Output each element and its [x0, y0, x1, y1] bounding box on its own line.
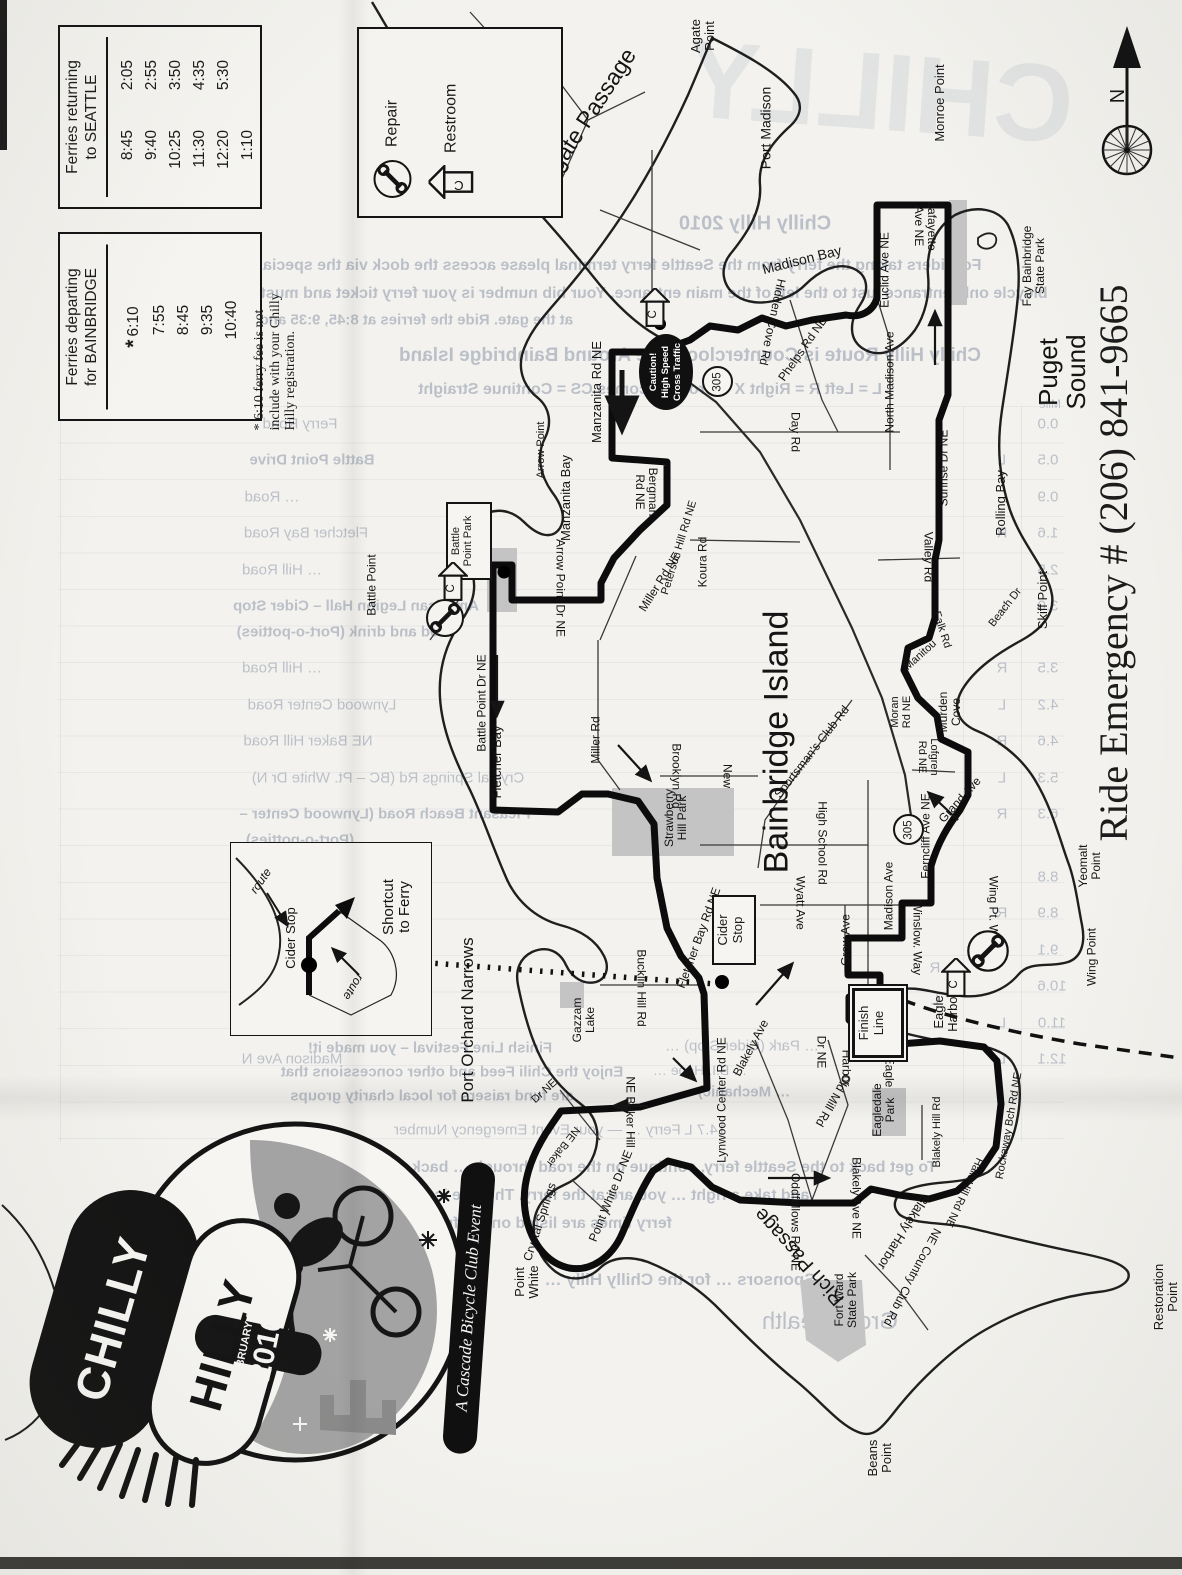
ferry-schedule-departing: Ferries departing for BAINBRIDGE *6:107:… [58, 232, 262, 421]
map-label-north-madison: North Madison Ave [884, 331, 897, 432]
map-label-new-label: New [721, 764, 734, 788]
ferry-time-row: 10:253:50 [164, 31, 188, 203]
svg-text:C: C [445, 584, 457, 592]
ferry-time-row: 12:205:30 [212, 31, 236, 203]
compass-north-label: N [1108, 89, 1130, 103]
map-label-manzanita-bay: Manzanita Bay [559, 455, 573, 541]
svg-text:C: C [454, 177, 464, 192]
map-label-madison-ave: Madison Ave [883, 862, 896, 931]
map-label-euclid-ave: Euclid Ave NE [879, 232, 892, 308]
map-label-rockaway-bch-rd: Rockaway Bch Rd NE [995, 1072, 1025, 1181]
map-label-gazzam-lake: Gazzam Lake [571, 998, 597, 1043]
map-label-eagle-harbor-dr-3: Dr NE [815, 1036, 828, 1069]
ferry-time-row: 10:40 [220, 238, 244, 415]
ride-emergency-number: Ride Emergency # (206) 841-9665 [1092, 205, 1164, 920]
ferry-time-row: 1:10 [236, 31, 260, 203]
map-label-lafayette-ave: Lafayette Ave NE [912, 201, 938, 250]
map-label-hidden-cove-rd: Hidden Cove Rd [757, 278, 788, 367]
ferry-time-row: 8:45 [172, 238, 196, 415]
map-label-skiff-point: Skiff Point [1036, 571, 1050, 629]
finish-line-box: Finish Line [852, 988, 904, 1058]
map-label-miller-rd-ne: Miller Rd NE [637, 550, 684, 614]
map-legend: Repair C Restroom [357, 27, 563, 218]
shortcut-inset: Cider Stop route route Shortcut to Ferry [230, 842, 432, 1036]
map-label-bucklin-hill-rd: Bucklin Hill Rd [635, 949, 648, 1026]
ferry-time-row: *6:10 [116, 238, 149, 415]
ferry-footnote: * 6:10 ferry fee is not include with you… [252, 225, 306, 430]
map-label-eagle-harbor-dr-1: Eagle [883, 1057, 896, 1088]
map-label-wing-point: Wing Point [1086, 928, 1099, 986]
repair-wrench-icon [373, 159, 413, 199]
restroom-sign-icon: C [941, 958, 971, 998]
map-label-battle-point-dr: Battle Point Dr NE [476, 654, 489, 751]
map-label-blakely-hill-rd: Blakely Hill Rd [932, 1097, 944, 1168]
map-label-eagle-harbor-water: Eagle Harbor [932, 992, 960, 1032]
ferry-returning-title: Ferries returning [64, 60, 81, 174]
map-label-restoration-point: Restoration Point [1152, 1264, 1180, 1330]
ferry-returning-times: 8:452:059:402:5510:253:5011:304:3512:205… [116, 31, 260, 203]
map-label-manitou: Manitou [902, 638, 939, 673]
map-label-miller-rd: Miller Rd [590, 716, 603, 763]
map-label-grand-ave: Grand Ave [936, 775, 983, 826]
cider-stop-box: Cider Stop [712, 895, 756, 965]
map-label-crystal-springs: Crystal Springs [521, 1181, 558, 1262]
inset-cider-stop-label: Cider Stop [284, 907, 298, 968]
map-label-sunrise-dr: Sunrise Dr NE [938, 430, 951, 507]
map-label-port-madison: Port Madison [758, 87, 773, 169]
restroom-sign-icon: C [429, 165, 475, 199]
map-label-arrow-point-dr: Arrow Point Dr NE [554, 539, 567, 637]
highway-305-marker: 305 [893, 814, 924, 845]
map-label-bergman-rd: Bergman Rd NE [633, 468, 659, 517]
map-label-madison-bay: Madison Bay [761, 243, 843, 277]
inset-shortcut-label: Shortcut to Ferry [381, 879, 413, 935]
map-label-phelps-rd: Phelps Rd NE [776, 314, 830, 383]
map-label-koura-rd: Koura Rd [697, 537, 710, 588]
map-label-halls-hill-rd: HallsHill Rd NE [942, 1155, 985, 1228]
map-label-blakely-ave-diag: Blakely Ave [731, 1018, 771, 1079]
map-label-moran-rd: Moran Rd NE [890, 696, 914, 728]
map-label-oddfellows-rd: Oddfellows Rd NE [789, 1173, 802, 1271]
legend-restroom-label: Restroom [443, 83, 461, 152]
map-label-high-school-rd: High School Rd [816, 801, 829, 884]
highway-305-marker: 305 [702, 366, 733, 397]
ferry-time-row: 11:304:35 [188, 31, 212, 203]
restroom-sign-icon: C [438, 562, 468, 602]
scanned-route-map-page: CHILLYChilly Hilly 2010For riders taking… [0, 0, 1182, 1575]
repair-wrench-icon [965, 928, 1011, 974]
map-label-port-orchard-narrows: Port Orchard Narrows [459, 937, 477, 1102]
caution-label: Caution!High SpeedCross Traffic [648, 334, 684, 410]
ferry-time-row: 7:55 [148, 238, 172, 415]
map-label-lofgren-rd: Lofgren Rd NE [915, 738, 939, 775]
map-label-brooklyn-rd: Brooklyn Rd [670, 743, 683, 808]
map-label-arrow-point: Arrow Point [536, 422, 548, 479]
map-label-ne-baker: NE Baker [543, 1124, 581, 1168]
map-label-fort-ward-park: Fort Ward State Park [833, 1272, 859, 1328]
ferry-departing-title: Ferries departing [64, 268, 81, 385]
map-label-baker-dr-ne: Dr NE [530, 1078, 560, 1107]
map-label-blakely-ave-ne: Blakely Ave NE [850, 1157, 863, 1239]
map-label-puget-sound: Puget Sound [1034, 312, 1090, 432]
map-label-ne-baker-hill: NE Baker Hill [624, 1076, 637, 1147]
map-label-fay-bainbridge-park: Fay Bainbridge State Park [1021, 226, 1047, 307]
map-label-beans-point: Beans Point [866, 1440, 894, 1477]
map-label-beach-dr: Beach Dr [987, 586, 1025, 629]
ferry-time-row: 8:452:05 [116, 31, 140, 203]
repair-wrench-icon [424, 597, 466, 639]
ferry-schedule-returning: Ferries returning to SEATTLE 8:452:059:4… [58, 25, 262, 209]
map-label-winslow-way: Winslow. Way [911, 901, 924, 975]
map-label-eagle-harbor-dr-2: Harbor [840, 1050, 853, 1087]
svg-text:C: C [948, 980, 960, 988]
scan-edge-artifact [0, 0, 7, 150]
map-label-day-rd: Day Rd [789, 412, 802, 452]
map-label-lynwood-center-rd: Lynwood Center Rd NE [716, 1037, 729, 1163]
ferry-time-row: 9:35 [196, 238, 220, 415]
map-label-fletcher-bay: Fletcher Bay [490, 726, 504, 799]
map-label-murden-cove: Murden Cove [937, 692, 963, 733]
map-label-bainbridge-island: Bainbridge Island [759, 611, 796, 874]
map-label-grow-ave: Grow Ave [840, 914, 853, 966]
ferry-departing-times: *6:107:558:459:3510:40 [116, 238, 245, 415]
map-label-eagledale-park: Eagledale Park [871, 1083, 897, 1136]
ferry-time-row: 9:402:55 [140, 31, 164, 203]
map-label-rolling-bay: Rolling Bay [994, 470, 1008, 536]
map-label-monroe-point: Monroe Point [933, 64, 947, 141]
map-label-wyatt-ave: Wyatt Ave [794, 876, 807, 930]
map-label-point-white: Point White [513, 1265, 541, 1298]
legend-repair-label: Repair [384, 99, 402, 146]
scan-edge-artifact [0, 1557, 1182, 1569]
map-label-valley-rd: Valley Rd [922, 532, 935, 582]
map-label-agate-point: Agate Point [689, 19, 717, 53]
svg-text:C: C [647, 310, 659, 318]
map-label-manzanita-rd: Manzanita Rd NE [590, 341, 604, 443]
map-label-battle-point: Battle Point [366, 554, 379, 615]
map-label-point-white-dr: Point White Dr NE [587, 1148, 635, 1243]
restroom-sign-icon: C [640, 288, 670, 328]
